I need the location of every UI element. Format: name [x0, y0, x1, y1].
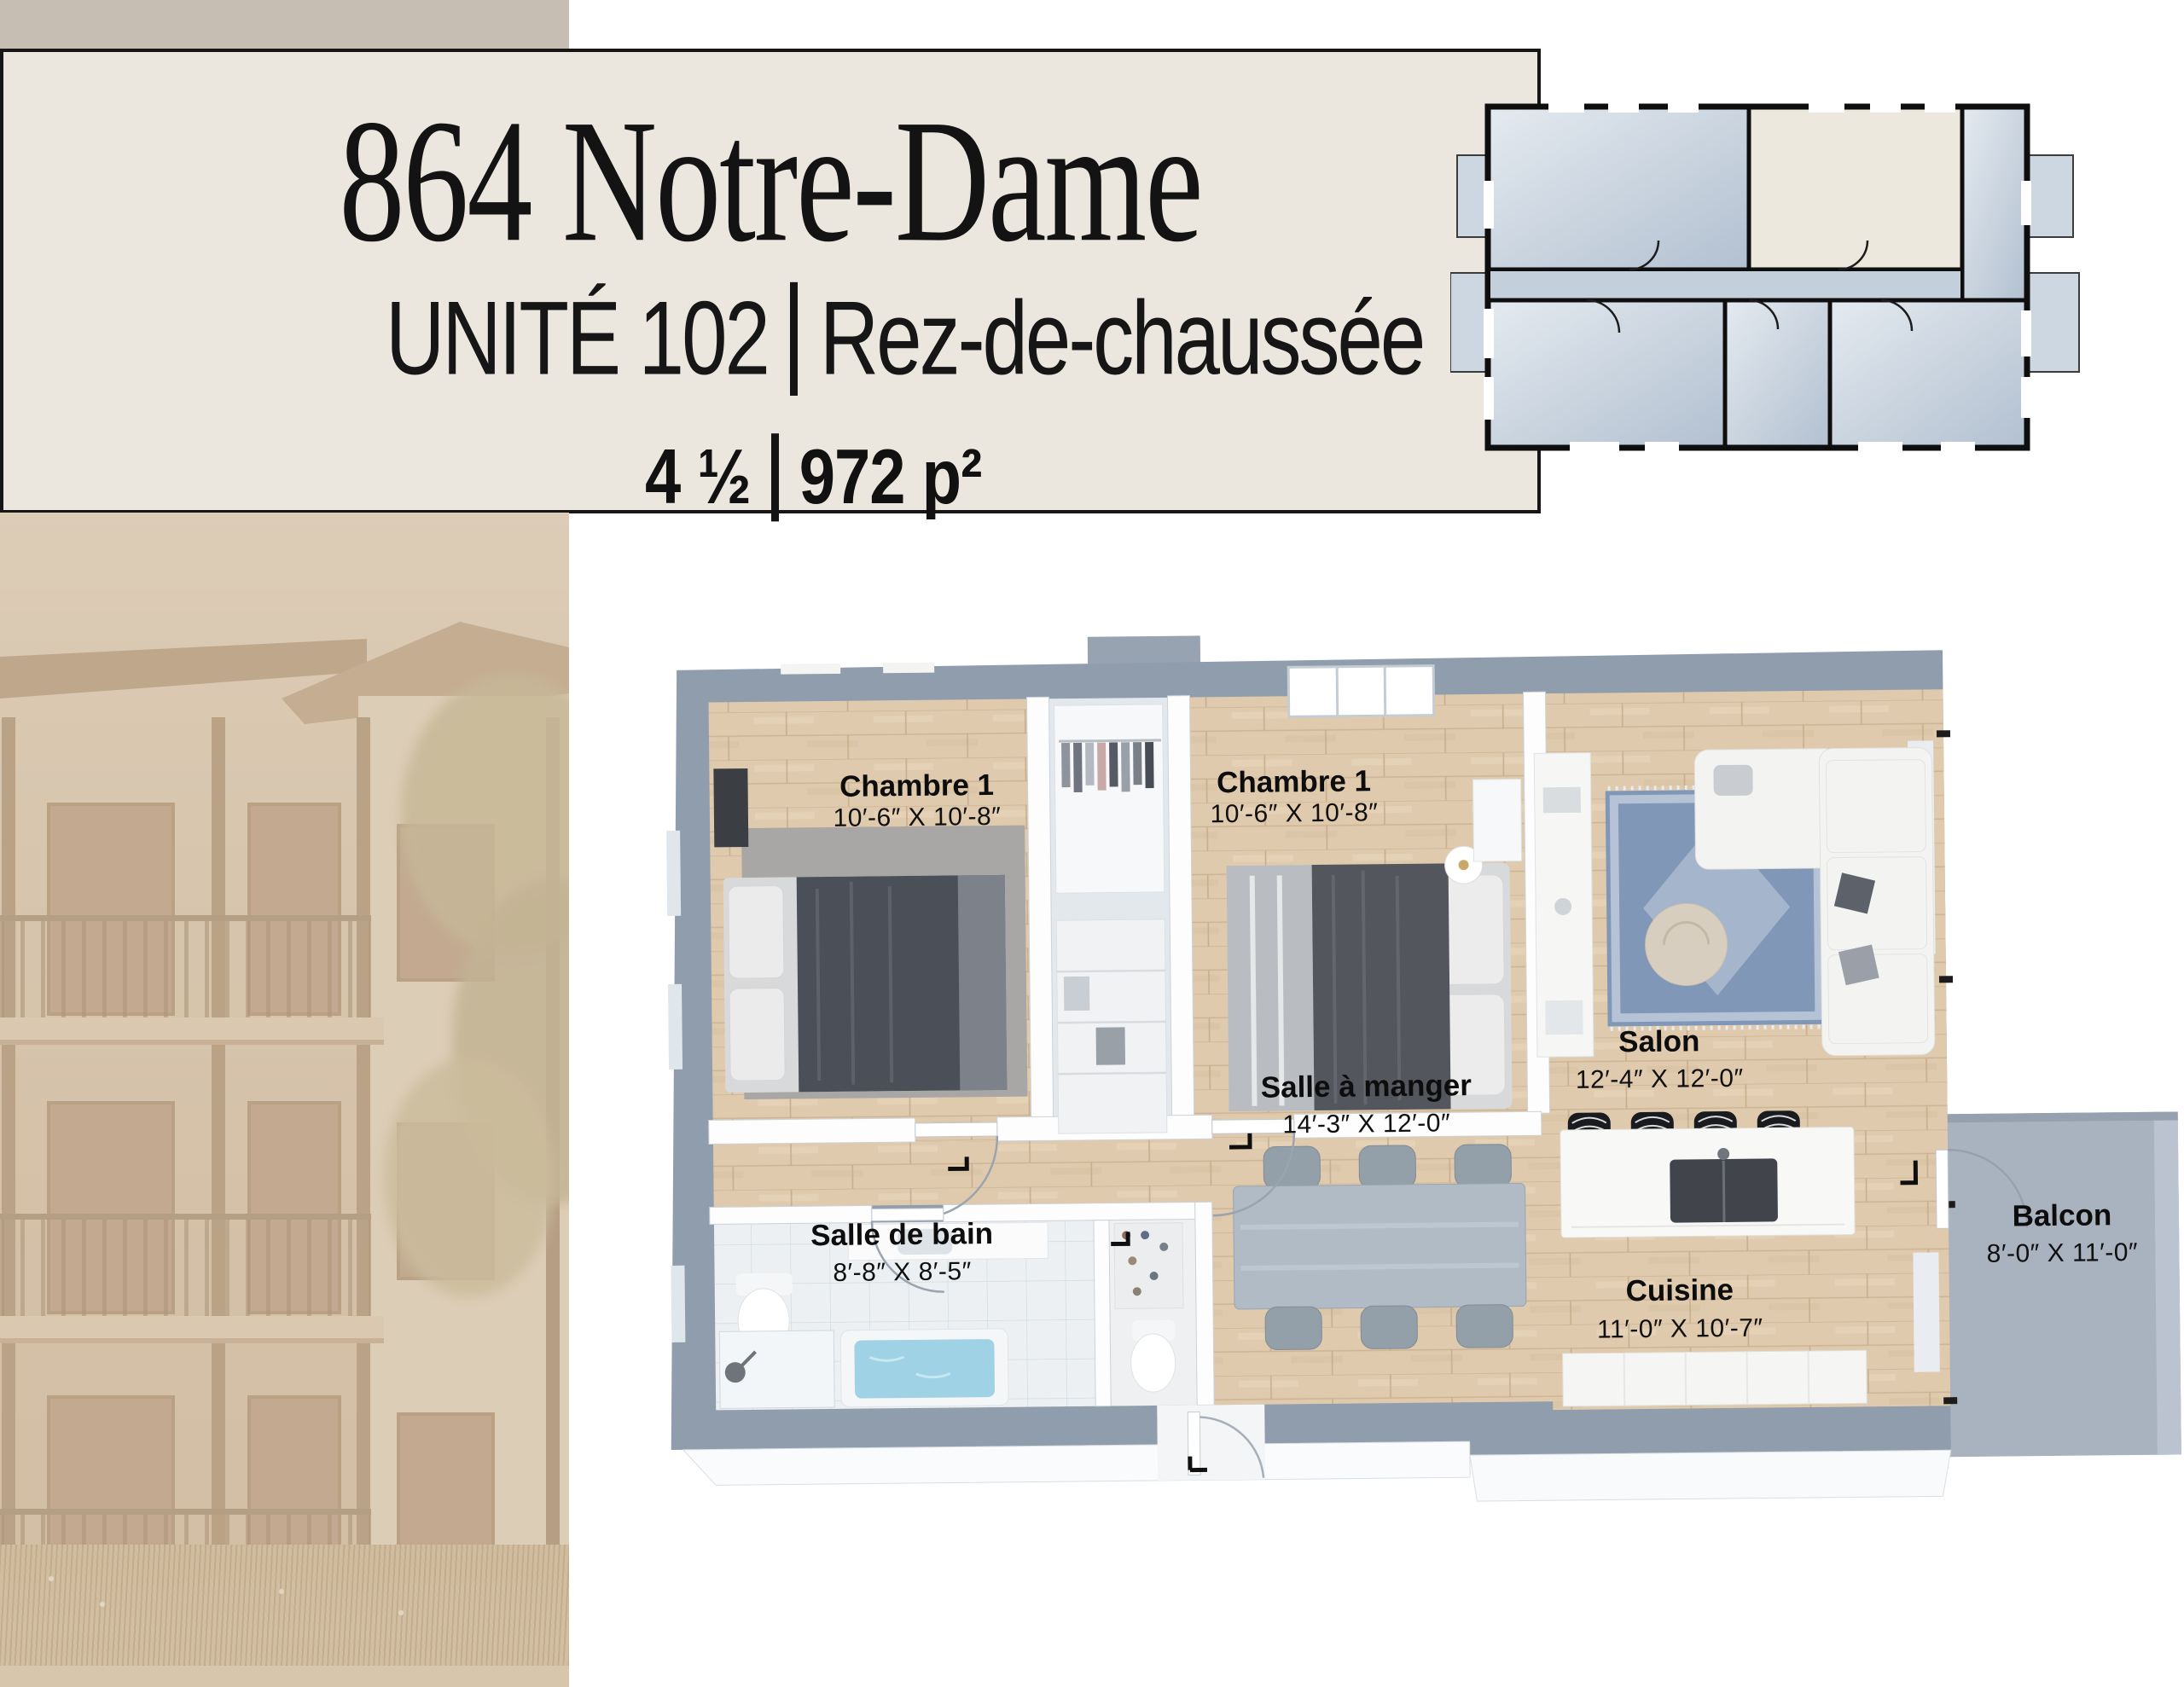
- pillow: [729, 988, 785, 1081]
- room-dims: 8′-8″ X 8′-5″: [833, 1257, 972, 1287]
- unit-area: 972 p²: [799, 432, 982, 521]
- room-config: 4 ½: [645, 432, 751, 521]
- page-title: 864 Notre-Dame: [3, 81, 1537, 232]
- chair: [1456, 1305, 1513, 1348]
- room-dims: 10′-6″ X 10′-8″: [1210, 798, 1378, 828]
- key-room: [1962, 107, 2026, 300]
- floor-plan-3d: Chambre 1 10′-6″ X 10′-8″ Chambre 1 10′-…: [631, 610, 2184, 1516]
- room-dims: 12′-4″ X 12′-0″: [1576, 1064, 1744, 1094]
- tv-console: [713, 768, 748, 847]
- balcony: [1944, 1111, 2181, 1457]
- key-balcony: [2026, 155, 2073, 237]
- room-dims: 14′-3″ X 12′-0″: [1282, 1109, 1450, 1139]
- room-label: Salle de bain: [810, 1217, 993, 1252]
- floor-plan-flyer: { "header": { "title": "864 Notre-Dame",…: [0, 0, 2184, 1687]
- room-dims: 8′-0″ X 11′-0″: [1987, 1238, 2139, 1268]
- throw: [958, 875, 1008, 1091]
- key-room: [1489, 107, 1749, 270]
- unit-number: UNITÉ 102: [386, 279, 768, 399]
- room-salon: [1605, 747, 1935, 1058]
- unit-stats: 4 ½ 972 p²: [645, 432, 981, 521]
- toilet: [1130, 1334, 1176, 1393]
- entry-door: [1157, 1405, 1265, 1481]
- room-label: Balcon: [2012, 1198, 2111, 1232]
- cushion: [1838, 944, 1879, 985]
- chair: [1359, 1145, 1416, 1189]
- building-photo: [0, 513, 569, 1687]
- floor-name: Rez-de-chaussée: [820, 279, 1423, 399]
- key-balcony: [1450, 273, 1489, 372]
- cushion: [1713, 765, 1752, 796]
- wall-face-bottom-right: [1470, 1450, 1952, 1501]
- header-box: 864 Notre-Dame UNITÉ 102 Rez-de-chaussée…: [0, 49, 1541, 513]
- room-label: Chambre 1: [839, 768, 994, 803]
- key-room-highlight: [1749, 107, 1962, 270]
- pouf: [1645, 903, 1728, 986]
- sepia-overlay: [0, 513, 569, 1687]
- address-title: 864 Notre-Dame: [339, 81, 1201, 283]
- pillow: [729, 886, 784, 979]
- separator-bar: [790, 282, 798, 396]
- chair: [1455, 1145, 1512, 1188]
- lower-cabinets: [1563, 1350, 1867, 1406]
- key-room: [1830, 300, 2026, 447]
- unit-subtitle: UNITÉ 102 Rez-de-chaussée: [386, 279, 1423, 399]
- dresser: [1473, 779, 1522, 861]
- separator-bar: [771, 433, 779, 521]
- bath-water: [854, 1339, 995, 1399]
- room-label: Salon: [1618, 1024, 1700, 1058]
- room-label: Chambre 1: [1217, 764, 1371, 799]
- building-key-plan: [1450, 96, 2107, 478]
- key-room: [1489, 300, 1725, 447]
- room-label: Cuisine: [1625, 1273, 1734, 1307]
- wall-face-bottom-left: [683, 1441, 1470, 1486]
- chair: [1361, 1306, 1418, 1349]
- key-balcony: [2026, 273, 2079, 372]
- chair: [1265, 1307, 1322, 1350]
- dining-table: [1234, 1183, 1526, 1309]
- room-label: Salle à manger: [1261, 1069, 1472, 1104]
- room-dims: 10′-6″ X 10′-8″: [833, 803, 1001, 832]
- room-salle-a-manger: [1233, 1144, 1526, 1350]
- room-dims: 11′-0″ X 10′-7″: [1597, 1314, 1763, 1344]
- key-corridor: [1489, 270, 1962, 300]
- tan-corner-block: [0, 0, 569, 49]
